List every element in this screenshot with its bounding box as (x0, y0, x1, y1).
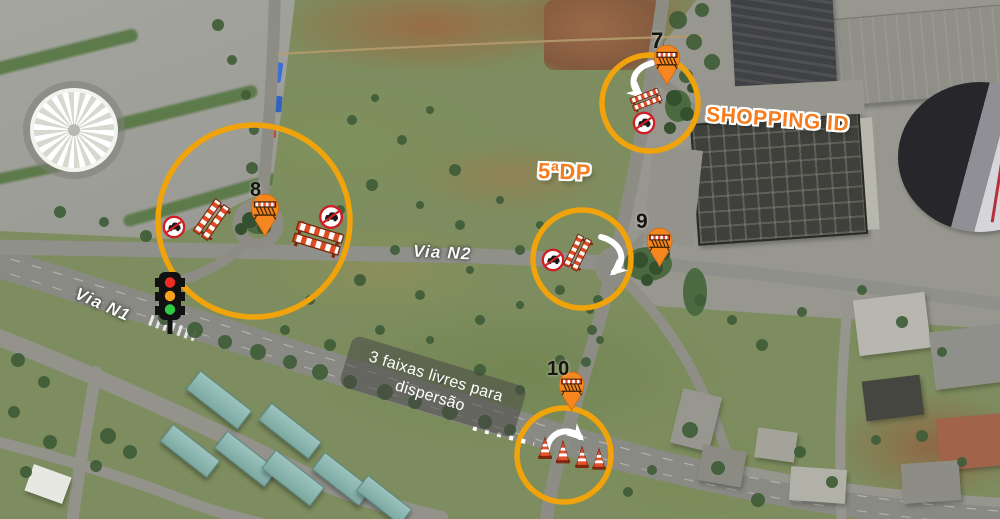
marker-number-10: 10 (547, 358, 569, 381)
traffic-cone-icon (574, 446, 591, 468)
no-entry-icon-8-right (320, 206, 342, 228)
traffic-cone-icon (591, 449, 607, 470)
curved-arrow-icon-7 (634, 63, 652, 95)
no-entry-icon-9 (543, 250, 563, 270)
marker-pin-9[interactable] (647, 228, 672, 267)
police-station-label: 5ªDP (538, 158, 592, 186)
barrier-icon-9 (563, 234, 594, 272)
no-entry-icon-7 (634, 113, 654, 133)
marker-number-7: 7 (651, 28, 663, 54)
annotation-layer (0, 0, 1000, 519)
marker-number-9: 9 (636, 210, 648, 234)
barrier-icon-8-left (193, 198, 232, 242)
no-entry-icon-8-left (164, 217, 184, 237)
curved-arrow-icon-9 (601, 237, 621, 272)
traffic-cone-icon (554, 441, 571, 463)
traffic-light-icon (155, 272, 185, 334)
marker-number-8: 8 (250, 179, 261, 202)
road-label-via-n2: Via N2 (413, 241, 473, 264)
map-canvas[interactable]: SHOPPING ID 5ªDP Via N2 Via N1 3 faixas … (0, 0, 1000, 519)
